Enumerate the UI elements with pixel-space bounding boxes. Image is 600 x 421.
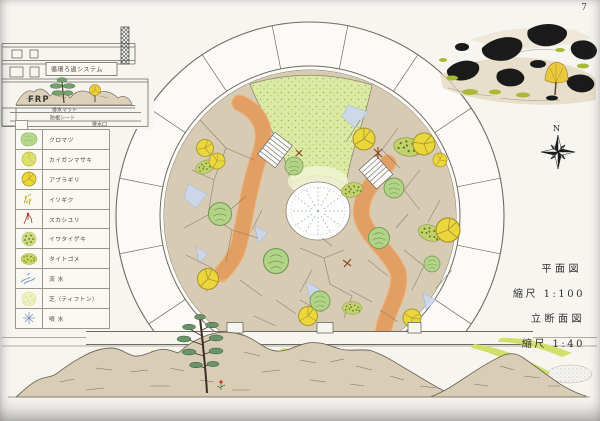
legend-row-funsui: 噴 水	[16, 308, 109, 328]
kaiganmasaki-symbol-icon	[18, 151, 40, 167]
page-number: 7	[581, 3, 587, 13]
filtration-pipe	[121, 27, 129, 64]
aburagiri-symbol-icon	[18, 171, 40, 187]
fountain	[286, 182, 350, 240]
legend-label: イワタイゲキ	[43, 229, 109, 248]
ryusui-symbol-icon	[18, 271, 40, 287]
perspective-sketch	[439, 24, 597, 105]
scanned-drawing-page: 循環ろ過システム FRP 排水マット 防根シート 排水口	[0, 0, 600, 421]
plan-title: 平面図	[457, 257, 585, 282]
sukashiyuri-symbol-icon	[18, 211, 40, 227]
legend-row-sukashiyuri: スカシユリ	[16, 209, 109, 229]
isogiku-symbol-icon	[18, 191, 40, 207]
legend-row-kuromatsu: クロマツ	[16, 130, 109, 149]
legend-row-isogiku: イソギク	[16, 189, 109, 209]
title-block: 平面図 縮尺 1:100 立断面図 縮尺 1:40	[457, 257, 585, 357]
legend-label: アブラギリ	[43, 170, 109, 189]
legend-row-iwataigeki: イワタイゲキ	[16, 228, 109, 248]
section-title: 立断面図	[457, 307, 585, 332]
legend-label: クロマツ	[43, 130, 109, 149]
plant-legend: クロマツ カイガンマサキ アブラギリ イソギク	[15, 129, 110, 329]
compass-rose-icon	[541, 135, 575, 169]
legend-label: 芝（ティフトン）	[43, 289, 109, 308]
legend-row-kaiganmasaki: カイガンマサキ	[16, 149, 109, 169]
section-drain-outlet-label: 排水口	[92, 121, 107, 128]
legend-label: 噴 水	[43, 309, 109, 328]
section-detail: 循環ろ過システム FRP 排水マット 防根シート 排水口	[0, 26, 154, 129]
section-frp-label: FRP	[28, 95, 50, 105]
compass-north-label: N	[553, 124, 560, 133]
legend-row-ryusui: 流 水	[16, 268, 109, 288]
funsui-symbol-icon	[18, 310, 40, 326]
section-drain-mat-label: 排水マット	[52, 107, 77, 114]
iwataigeki-symbol-icon	[18, 231, 40, 247]
legend-label: イソギク	[43, 190, 109, 209]
legend-row-shiba: 芝（ティフトン）	[16, 288, 109, 308]
taitogome-symbol-icon	[18, 251, 40, 267]
legend-label: カイガンマサキ	[43, 150, 109, 169]
section-scale: 縮尺 1:40	[457, 332, 585, 357]
legend-row-taitogome: タイトゴメ	[16, 248, 109, 268]
legend-label: タイトゴメ	[43, 249, 109, 268]
shiba-symbol-icon	[18, 291, 40, 307]
plan-scale: 縮尺 1:100	[457, 282, 585, 307]
legend-row-aburagiri: アブラギリ	[16, 169, 109, 189]
legend-label: 流 水	[43, 269, 109, 288]
legend-label: スカシユリ	[43, 210, 109, 229]
section-system-label: 循環ろ過システム	[51, 66, 103, 74]
section-root-sheet-label: 防根シート	[50, 115, 75, 122]
kuromatsu-symbol-icon	[18, 131, 40, 147]
